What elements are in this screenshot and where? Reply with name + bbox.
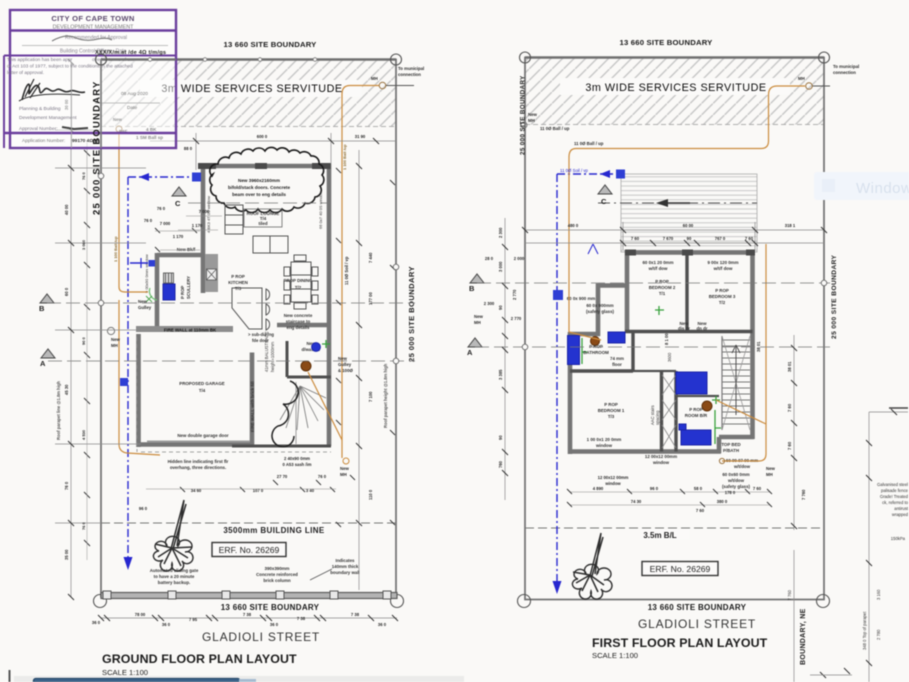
svg-text:PROPOSED GARAGE: PROPOSED GARAGE xyxy=(179,381,224,386)
svg-text:76 0: 76 0 xyxy=(144,218,153,223)
svg-text:25 000 SITE BOUNDARY: 25 000 SITE BOUNDARY xyxy=(407,266,416,362)
svg-text:SCALE 1:100: SCALE 1:100 xyxy=(102,668,148,677)
svg-text:1 00 0x1 20 0mm: 1 00 0x1 20 0mm xyxy=(587,437,622,442)
svg-text:BEDROOM 3: BEDROOM 3 xyxy=(709,294,736,299)
svg-text:7 38: 7 38 xyxy=(297,616,306,621)
svg-text:Gulley: Gulley xyxy=(338,362,352,367)
svg-text:tiled: tiled xyxy=(258,221,267,226)
svg-text:Approval Number:: Approval Number: xyxy=(19,126,58,132)
svg-text:110 0: 110 0 xyxy=(368,489,373,500)
svg-text:MH: MH xyxy=(528,118,535,123)
svg-text:60 0x60 0mm: 60 0x60 0mm xyxy=(722,472,749,477)
svg-text:GLADIOLI STREET: GLADIOLI STREET xyxy=(202,630,320,644)
svg-text:dis dr: dis dr xyxy=(678,326,690,331)
svg-text:T/4: T/4 xyxy=(199,388,206,393)
svg-text:BOUNDARY, NE: BOUNDARY, NE xyxy=(800,608,807,665)
svg-text:window: window xyxy=(604,481,621,486)
svg-text:28 0: 28 0 xyxy=(485,256,494,261)
svg-text:7 95: 7 95 xyxy=(189,617,198,622)
svg-text:CITY OF CAPE TOWN: CITY OF CAPE TOWN xyxy=(51,14,134,23)
svg-text:GLADIOLI STREET: GLADIOLI STREET xyxy=(638,617,756,631)
svg-text:Development Management: Development Management xyxy=(19,115,77,121)
svg-text:178 0: 178 0 xyxy=(725,490,736,495)
svg-text:12 00x12 00mm: 12 00x12 00mm xyxy=(598,475,629,480)
svg-text:connection: connection xyxy=(398,72,421,77)
svg-text:7 60: 7 60 xyxy=(696,508,705,513)
svg-text:11 0Ø Soil / vp: 11 0Ø Soil / vp xyxy=(560,168,588,173)
svg-text:348 0 Top of parapet: 348 0 Top of parapet xyxy=(862,611,867,650)
svg-text:1 170: 1 170 xyxy=(192,223,203,228)
svg-text:palisade fence: palisade fence xyxy=(881,488,909,493)
svg-text:9 00x 120 0mm: 9 00x 120 0mm xyxy=(707,260,738,265)
svg-text:7 100: 7 100 xyxy=(368,391,373,402)
svg-text:MH: MH xyxy=(371,76,378,81)
svg-text:7 440: 7 440 xyxy=(368,252,373,263)
svg-text:76 0: 76 0 xyxy=(157,206,166,211)
svg-text:13 660 SITE BOUNDARY: 13 660 SITE BOUNDARY xyxy=(619,38,712,47)
svg-text:7 60: 7 60 xyxy=(631,236,640,241)
svg-text:ROOM B/R: ROOM B/R xyxy=(685,413,708,418)
svg-text:2 780: 2 780 xyxy=(876,629,881,640)
svg-text:2 300: 2 300 xyxy=(498,227,503,238)
svg-text:13 660 SITE BOUNDARY: 13 660 SITE BOUNDARY xyxy=(648,603,747,612)
svg-text:MH: MH xyxy=(340,472,347,477)
svg-text:BEDROOM 1: BEDROOM 1 xyxy=(598,408,625,413)
svg-text:318 1: 318 1 xyxy=(785,223,796,228)
svg-text:A: A xyxy=(467,348,473,357)
svg-text:T/1: T/1 xyxy=(659,291,666,296)
svg-text:3 060: 3 060 xyxy=(81,239,86,250)
svg-text:74 30: 74 30 xyxy=(631,499,642,504)
svg-text:SCULLERY: SCULLERY xyxy=(186,276,191,299)
svg-text:3 385: 3 385 xyxy=(498,369,503,380)
svg-text:66 0x7 40 0S window: 66 0x7 40 0S window xyxy=(318,191,323,229)
svg-text:60 0x 900mm: 60 0x 900mm xyxy=(586,303,613,308)
svg-text:eng details: eng details xyxy=(287,325,310,330)
svg-text:7 60: 7 60 xyxy=(745,236,754,241)
svg-text:window: window xyxy=(652,460,670,465)
svg-text:w/t/dow: w/t/dow xyxy=(733,464,751,469)
svg-text:45 30: 45 30 xyxy=(64,384,69,395)
svg-text:4 BK3 4T 0S window: 4 BK3 4T 0S window xyxy=(206,196,211,233)
svg-text:08 Aug 2020: 08 Aug 2020 xyxy=(121,91,148,97)
svg-text:F/RE WALL with brick fill: F/RE WALL with brick fill xyxy=(250,381,255,432)
svg-text:480 0: 480 0 xyxy=(568,223,579,228)
svg-text:8 1 00: 8 1 00 xyxy=(664,333,669,345)
svg-text:60 0x1 20 0mm: 60 0x1 20 0mm xyxy=(642,260,673,265)
svg-text:w/t/f dow: w/t/f dow xyxy=(648,266,668,271)
svg-text:38 01: 38 01 xyxy=(756,341,761,352)
svg-text:connection: connection xyxy=(833,70,856,75)
svg-text:C: C xyxy=(175,199,181,208)
svg-text:Roof parapet height @1.8m high: Roof parapet height @1.8m high xyxy=(383,363,388,428)
svg-text:7 000: 7 000 xyxy=(160,221,171,226)
svg-text:2 300: 2 300 xyxy=(484,301,495,306)
svg-text:KITCHEN: KITCHEN xyxy=(228,280,248,285)
svg-text:3m WIDE SERVICES SERVITUDE: 3m WIDE SERVICES SERVITUDE xyxy=(161,83,342,95)
svg-text:36 0: 36 0 xyxy=(92,620,101,625)
svg-text:letter of approval.: letter of approval. xyxy=(7,70,44,76)
svg-text:P ROP: P ROP xyxy=(604,402,618,407)
svg-text:ck, referred to: ck, referred to xyxy=(882,500,909,505)
svg-text:P ROP: P ROP xyxy=(231,274,245,279)
svg-text:T/2: T/2 xyxy=(719,300,726,305)
svg-text:P ROP: P ROP xyxy=(715,288,729,293)
svg-text:New: New xyxy=(474,314,483,319)
svg-text:76 0: 76 0 xyxy=(81,521,86,530)
svg-text:4 530: 4 530 xyxy=(81,429,86,440)
svg-text:wrapped: wrapped xyxy=(892,512,909,517)
svg-text:(safety glass): (safety glass) xyxy=(722,484,751,489)
svg-text:140mm thick: 140mm thick xyxy=(332,564,359,569)
svg-text:dn dr: dn dr xyxy=(697,326,708,331)
svg-text:0 A53 sash /im: 0 A53 sash /im xyxy=(283,462,312,467)
svg-text:96 0: 96 0 xyxy=(650,486,659,491)
svg-text:ERF. No. 26269: ERF. No. 26269 xyxy=(219,545,280,555)
svg-text:7 38: 7 38 xyxy=(351,612,360,617)
svg-text:New double garage door: New double garage door xyxy=(177,433,229,438)
svg-text:40 00: 40 00 xyxy=(64,204,69,215)
svg-text:New concrete: New concrete xyxy=(284,313,313,318)
svg-text:DEVELOPMENT MANAGEMENT: DEVELOPMENT MANAGEMENT xyxy=(53,25,134,31)
svg-text:38 01: 38 01 xyxy=(787,361,792,372)
svg-text:90: 90 xyxy=(498,435,503,440)
svg-text:27 70: 27 70 xyxy=(277,474,288,479)
svg-text:2 770: 2 770 xyxy=(512,289,517,300)
svg-text:11 0Ø Ball / up: 11 0Ø Ball / up xyxy=(540,126,570,131)
svg-text:GROUND FLOOR PLAN LAYOUT: GROUND FLOOR PLAN LAYOUT xyxy=(102,652,297,666)
svg-text:4 890: 4 890 xyxy=(593,486,604,491)
svg-text:2 770: 2 770 xyxy=(511,316,522,321)
svg-text:7 60: 7 60 xyxy=(787,441,792,450)
svg-text:78 00: 78 00 xyxy=(135,612,146,617)
svg-text:MH: MH xyxy=(474,320,481,325)
svg-text:w/t/dow: w/t/dow xyxy=(727,478,745,483)
svg-text:11 0Ø Soil / vp: 11 0Ø Soil / vp xyxy=(344,256,349,285)
svg-text:7 760: 7 760 xyxy=(801,489,806,500)
svg-text:Application Number:: Application Number: xyxy=(22,138,65,144)
svg-text:ERF. No. 26269: ERF. No. 26269 xyxy=(650,564,711,574)
svg-text:3500mm BUILDING LINE: 3500mm BUILDING LINE xyxy=(223,526,325,535)
svg-text:boundary wall: boundary wall xyxy=(330,570,360,575)
svg-text:767 0: 767 0 xyxy=(715,236,726,241)
svg-text:w/t/f dow: w/t/f dow xyxy=(713,266,733,271)
svg-text:7 60: 7 60 xyxy=(753,486,762,491)
svg-text:90 0: 90 0 xyxy=(81,336,86,345)
svg-text:58 0: 58 0 xyxy=(694,486,703,491)
svg-text:New: New xyxy=(340,466,349,471)
svg-text:60 00: 60 00 xyxy=(683,223,694,228)
svg-text:88 0: 88 0 xyxy=(184,146,193,151)
svg-text:3600: 3600 xyxy=(667,352,672,362)
svg-text:C: C xyxy=(601,197,607,206)
svg-text:T/3: T/3 xyxy=(608,414,615,419)
svg-text:3 000: 3 000 xyxy=(498,261,503,272)
svg-text:Windows: Windows xyxy=(856,180,909,197)
svg-text:B: B xyxy=(469,284,475,293)
svg-text:11 0Ø Ball / up: 11 0Ø Ball / up xyxy=(574,141,604,146)
svg-text:antirust: antirust xyxy=(894,506,909,511)
svg-text:BEDROOM 2: BEDROOM 2 xyxy=(649,285,676,290)
svg-text:Concrete reinforced: Concrete reinforced xyxy=(256,572,298,577)
svg-text:76 0: 76 0 xyxy=(64,481,69,490)
svg-text:1 100 Ball /up: 1 100 Ball /up xyxy=(113,236,118,262)
svg-text:600 0: 600 0 xyxy=(257,134,268,139)
svg-text:> sub-dia /ng: > sub-dia /ng xyxy=(248,332,274,337)
svg-text:A: A xyxy=(40,359,46,368)
svg-text:P ROP: P ROP xyxy=(180,286,185,299)
svg-text:25 000 SITE BOUNDARY: 25 000 SITE BOUNDARY xyxy=(831,254,838,339)
svg-text:25 000 SITE BOUNDARY: 25 000 SITE BOUNDARY xyxy=(91,80,102,215)
svg-text:beam over to eng details: beam over to eng details xyxy=(232,192,286,197)
svg-text:12 00x12 00mm: 12 00x12 00mm xyxy=(645,454,677,459)
svg-text:Date: Date xyxy=(127,105,137,111)
svg-text:New Bk/f: New Bk/f xyxy=(177,247,196,252)
svg-text:1 170: 1 170 xyxy=(173,234,184,239)
svg-text:Recommended for Approval: Recommended for Approval xyxy=(65,35,127,41)
svg-text:(safety glass): (safety glass) xyxy=(586,309,615,314)
svg-text:MH: MH xyxy=(111,343,118,348)
svg-text:31 90: 31 90 xyxy=(355,134,366,139)
svg-text:P/BATH: P/BATH xyxy=(723,448,739,453)
svg-text:9 00x90 0mm window: 9 00x90 0mm window xyxy=(144,254,149,293)
svg-text:7 000: 7 000 xyxy=(199,209,210,214)
svg-text:SCALE 1:100: SCALE 1:100 xyxy=(592,651,638,660)
svg-text:Hidden line indicating first f: Hidden line indicating first flr xyxy=(168,459,229,464)
svg-text:13 660 SITE BOUNDARY: 13 660 SITE BOUNDARY xyxy=(223,40,316,49)
svg-text:brick column: brick column xyxy=(263,578,291,583)
svg-text:XXX/X/m.at /de 4Ω t/m/gs: XXX/X/m.at /de 4Ω t/m/gs xyxy=(95,50,166,56)
svg-text:Planning & Building: Planning & Building xyxy=(19,106,61,112)
svg-text:To municipal: To municipal xyxy=(833,64,859,69)
svg-text:36 0: 36 0 xyxy=(270,622,279,627)
svg-text:P ROP: P ROP xyxy=(689,407,703,412)
svg-text:60 0x 900 mm: 60 0x 900 mm xyxy=(567,296,596,301)
svg-text:window: window xyxy=(595,443,613,448)
svg-text:41mm BALUSTRADE: 41mm BALUSTRADE xyxy=(264,331,269,372)
svg-text:MH: MH xyxy=(766,472,773,477)
svg-text:New 3960x2160mm: New 3960x2160mm xyxy=(238,178,280,183)
svg-text:25 000 SITE BOUNDARY: 25 000 SITE BOUNDARY xyxy=(520,75,527,155)
svg-text:7 670: 7 670 xyxy=(663,236,674,241)
svg-text:36 0: 36 0 xyxy=(378,622,387,627)
svg-text:bifold/stack doors. Concrete: bifold/stack doors. Concrete xyxy=(228,185,290,190)
svg-text:Galvanised steel: Galvanised steel xyxy=(877,482,908,487)
svg-text:& 100Ø: & 100Ø xyxy=(338,368,353,373)
svg-text:96 0: 96 0 xyxy=(139,506,148,511)
svg-text:60 0: 60 0 xyxy=(64,287,69,296)
svg-text:177 00: 177 00 xyxy=(368,292,373,305)
svg-text:BATHROOM: BATHROOM xyxy=(583,350,609,355)
svg-text:FIRE WALL at 110mm BK: FIRE WALL at 110mm BK xyxy=(164,328,217,333)
svg-text:New: New xyxy=(528,112,537,117)
svg-text:2 40x90 0mm: 2 40x90 0mm xyxy=(284,456,310,461)
svg-text:battery backup.: battery backup. xyxy=(158,580,190,585)
svg-text:MH: MH xyxy=(798,76,805,81)
svg-text:3 160: 3 160 xyxy=(876,589,881,600)
svg-text:76 0: 76 0 xyxy=(318,474,327,479)
svg-text:staircase to: staircase to xyxy=(286,319,311,324)
svg-text:overhang, three directions.: overhang, three directions. xyxy=(170,465,226,470)
svg-text:Roof parapet line @1.8m high: Roof parapet line @1.8m high xyxy=(56,381,61,440)
svg-text:2 000: 2 000 xyxy=(514,256,525,261)
svg-text:Indicates: Indicates xyxy=(335,558,355,563)
svg-text:TOP BED: TOP BED xyxy=(721,442,740,447)
svg-text:FIRST FLOOR PLAN LAYOUT: FIRST FLOOR PLAN LAYOUT xyxy=(592,636,768,650)
svg-text:7 760: 7 760 xyxy=(787,589,792,600)
svg-text:90: 90 xyxy=(498,305,503,310)
svg-text:1 100 Ball /up: 1 100 Ball /up xyxy=(342,144,347,170)
svg-text:380 0: 380 0 xyxy=(717,499,728,504)
svg-text:floor: floor xyxy=(612,362,622,367)
svg-text:P ROP: P ROP xyxy=(589,344,603,349)
svg-text:spacing: spacing xyxy=(655,410,660,425)
svg-text:150kPa: 150kPa xyxy=(891,536,906,541)
svg-text:New: New xyxy=(766,466,775,471)
svg-text:3m WIDE SERVICES SERVITUDE: 3m WIDE SERVICES SERVITUDE xyxy=(585,82,766,94)
svg-text:35 00: 35 00 xyxy=(64,549,69,560)
svg-text:B: B xyxy=(39,304,45,313)
svg-text:76 0: 76 0 xyxy=(81,171,86,180)
svg-text:760: 760 xyxy=(498,460,503,468)
svg-text:36 0: 36 0 xyxy=(162,622,171,627)
svg-text:To municipal: To municipal xyxy=(398,66,424,71)
svg-text:390x390mm: 390x390mm xyxy=(265,566,290,571)
svg-text:74 mm: 74 mm xyxy=(610,356,624,361)
svg-text:7 60: 7 60 xyxy=(787,403,792,412)
svg-text:Grade! Treated: Grade! Treated xyxy=(880,494,909,499)
svg-text:of Act 103 of 1977, subject to: of Act 103 of 1977, subject to the condi… xyxy=(7,64,133,70)
svg-text:3.5m B/L: 3.5m B/L xyxy=(643,531,676,540)
svg-text:Gulley: Gulley xyxy=(138,305,152,310)
svg-text:New: New xyxy=(111,337,120,342)
svg-text:to have a 20 minute: to have a 20 minute xyxy=(154,574,195,579)
svg-text:height=1000mm: height=1000mm xyxy=(270,341,275,372)
svg-text:Automated sliding gate: Automated sliding gate xyxy=(150,568,199,573)
svg-text:7 38: 7 38 xyxy=(243,612,252,617)
svg-text:This application has been appr: This application has been appr xyxy=(7,57,73,63)
svg-text:New: New xyxy=(338,356,347,361)
svg-text:13 660 SITE BOUNDARY: 13 660 SITE BOUNDARY xyxy=(221,603,320,612)
svg-text:90: 90 xyxy=(687,236,692,241)
